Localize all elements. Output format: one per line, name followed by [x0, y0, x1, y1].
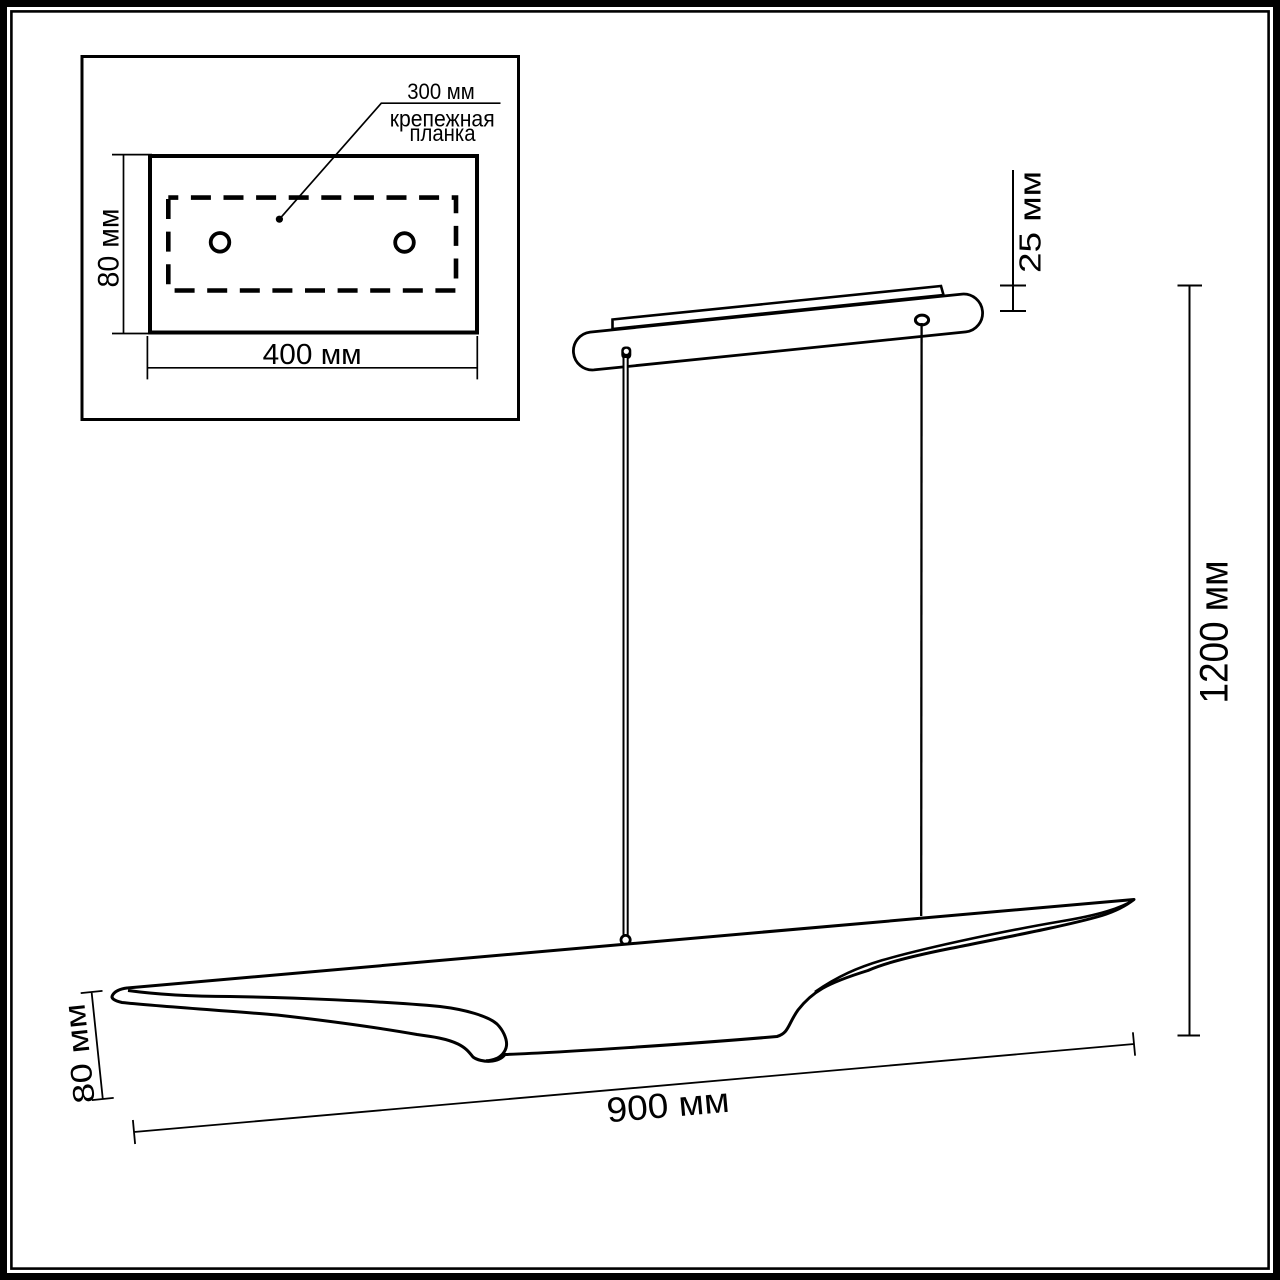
svg-text:планка: планка	[410, 120, 476, 146]
svg-text:1200 мм: 1200 мм	[1193, 561, 1237, 704]
svg-text:300 мм: 300 мм	[407, 79, 475, 104]
svg-text:80 мм: 80 мм	[93, 209, 126, 288]
svg-text:400 мм: 400 мм	[263, 339, 362, 371]
svg-text:25 мм: 25 мм	[1013, 171, 1048, 273]
